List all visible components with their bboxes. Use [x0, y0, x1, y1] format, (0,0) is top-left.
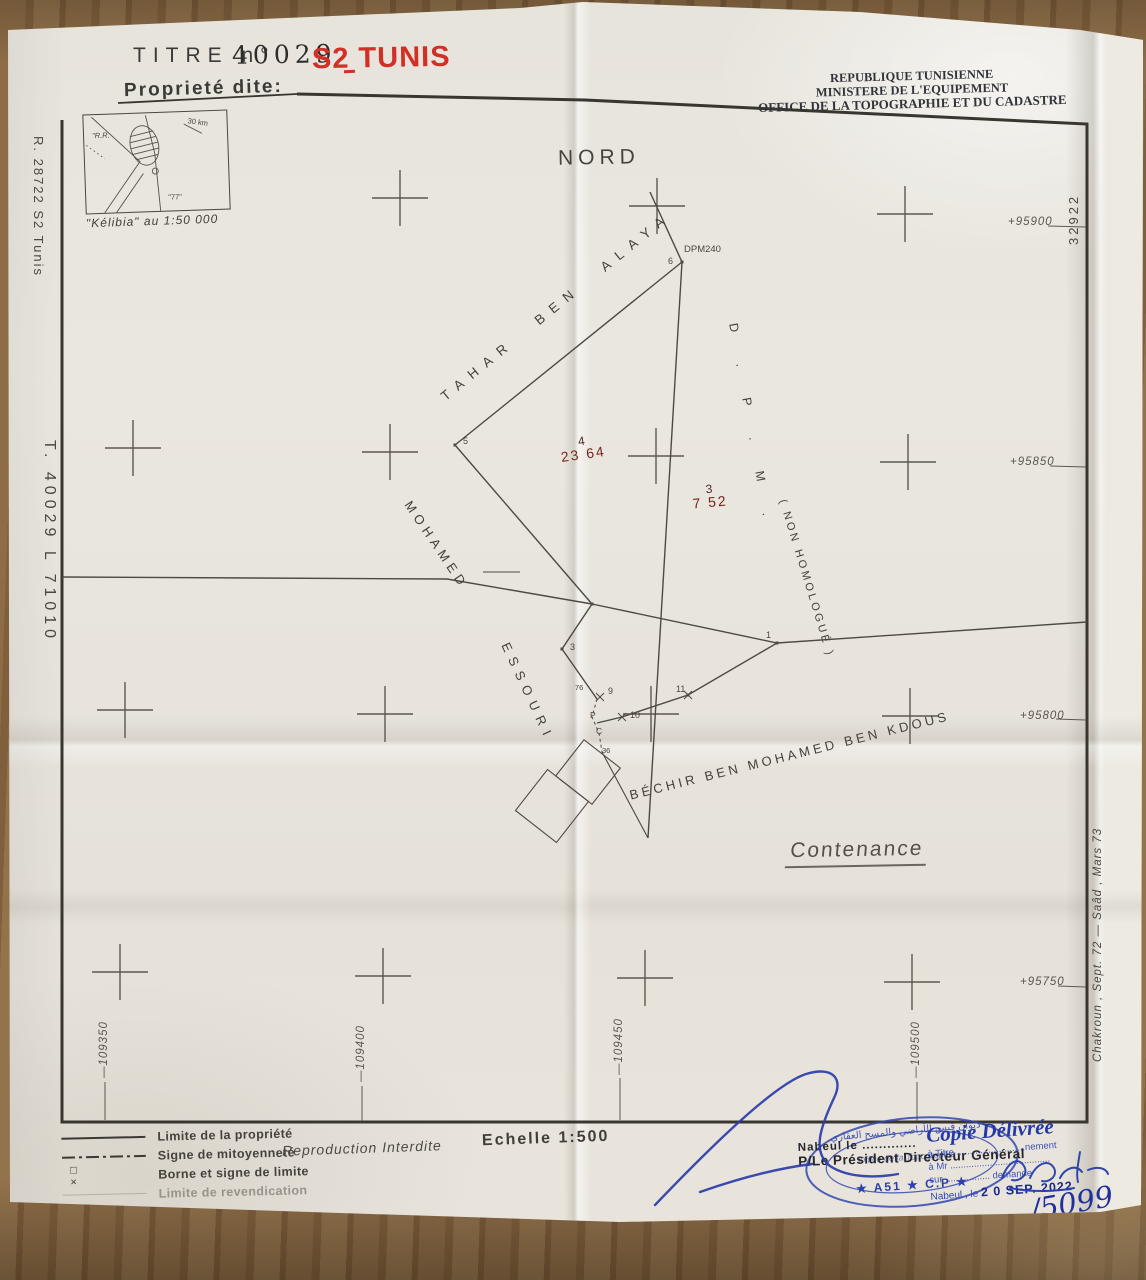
photo-of-cadastral-plan: TITRE n° 40029 S2 TUNIS Proprieté dite: … [0, 0, 1146, 1280]
arabic-signature [1002, 1152, 1108, 1191]
pen-signatures [0, 0, 1146, 1280]
plan-sheet: TITRE n° 40029 S2 TUNIS Proprieté dite: … [0, 0, 1146, 1280]
